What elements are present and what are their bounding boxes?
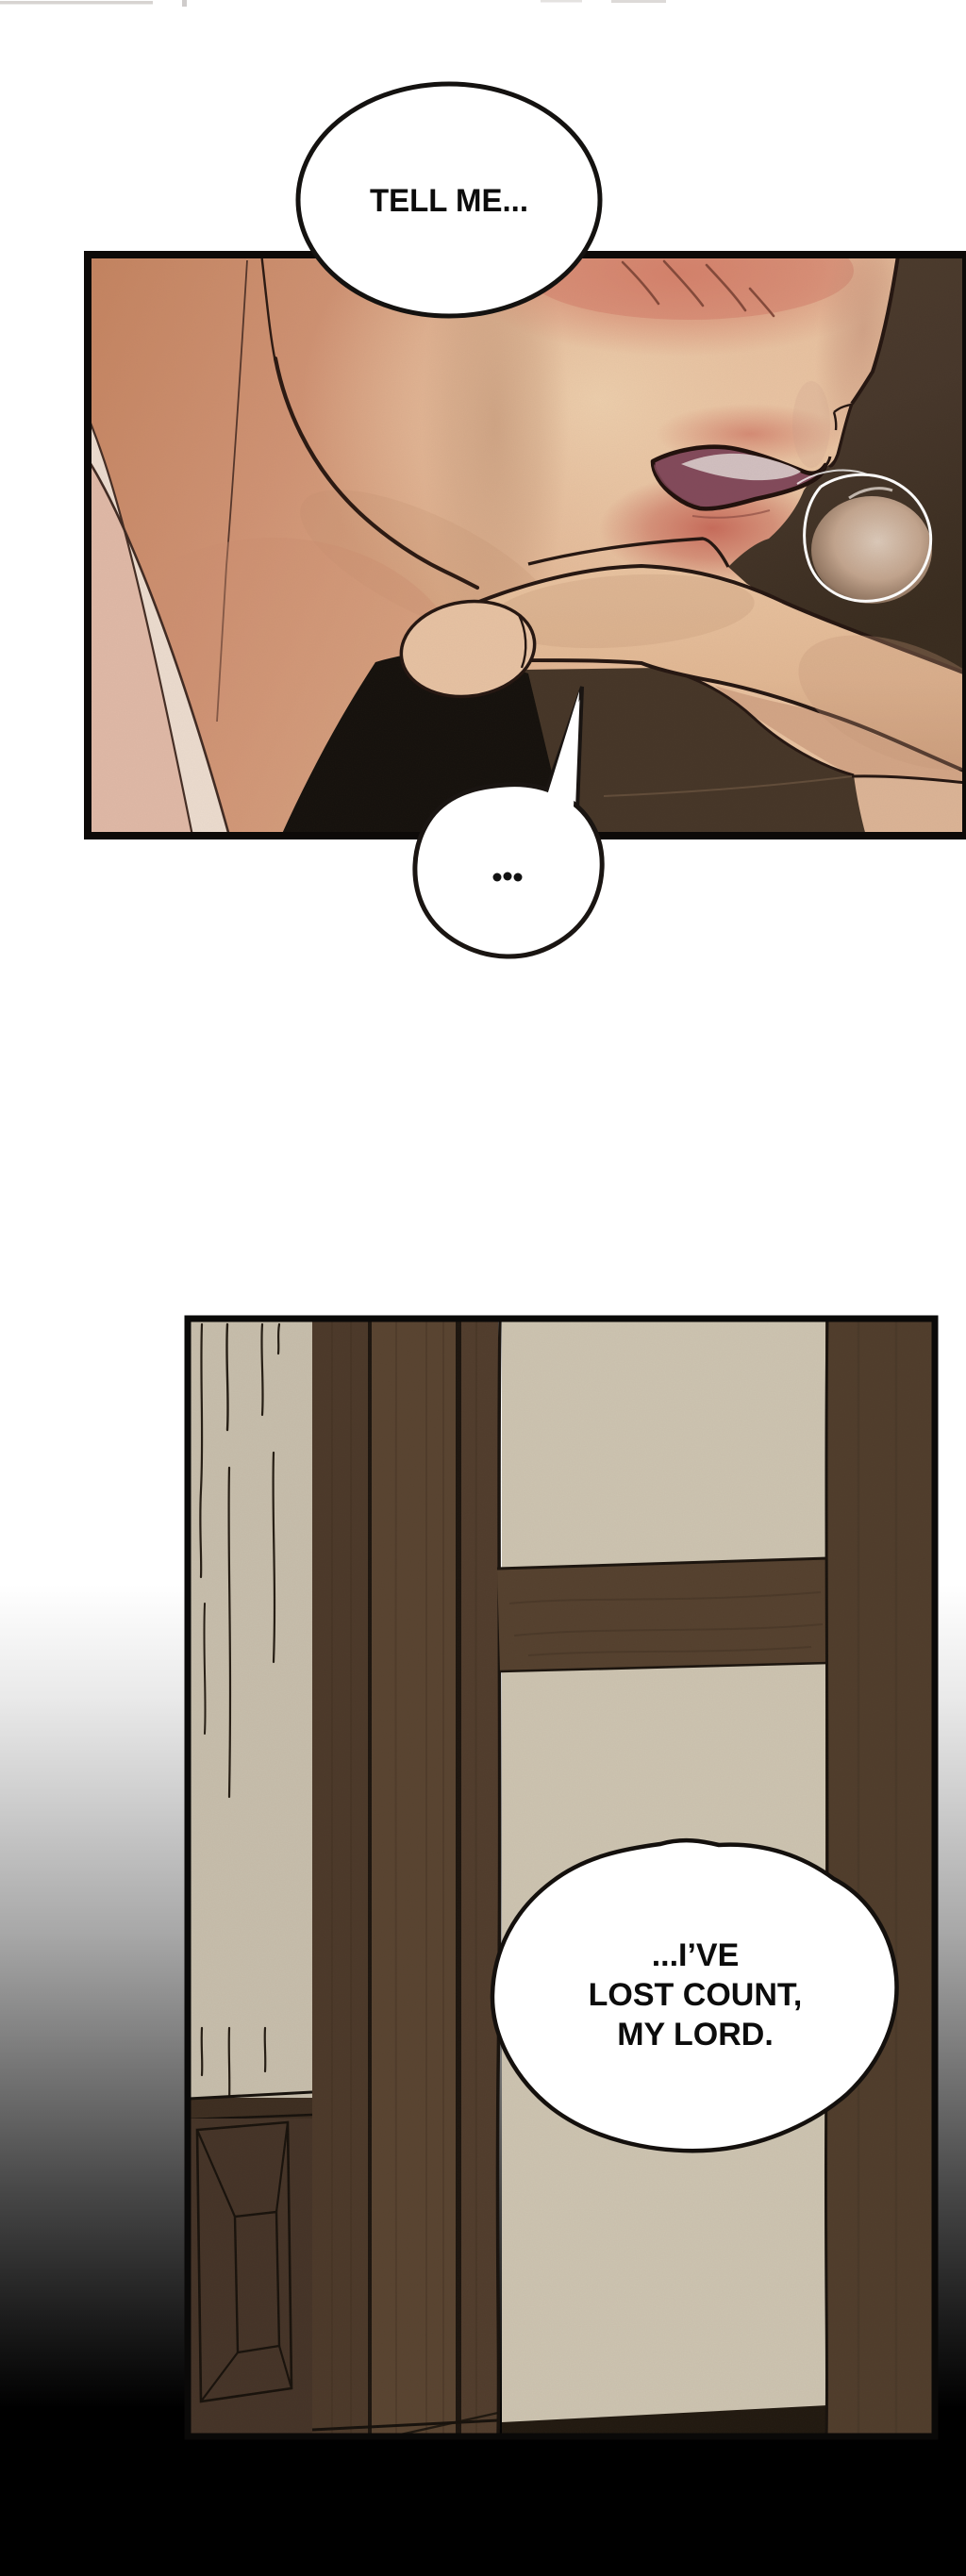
svg-text:TELL ME...: TELL ME...: [370, 183, 528, 219]
svg-text:LOST COUNT,: LOST COUNT,: [589, 1977, 803, 2013]
svg-text:MY LORD.: MY LORD.: [617, 2017, 774, 2052]
svg-text:...I’VE: ...I’VE: [652, 1937, 740, 1973]
